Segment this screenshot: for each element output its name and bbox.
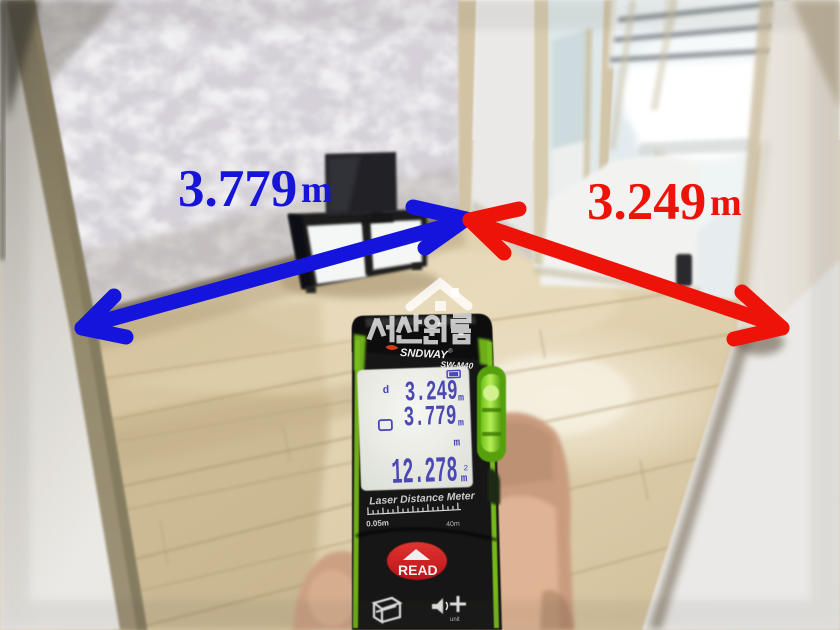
svg-text:m: m — [710, 182, 742, 224]
svg-text:d: d — [382, 385, 389, 397]
svg-text:m: m — [458, 418, 464, 429]
svg-text:40m: 40m — [446, 521, 460, 529]
svg-text:12.278: 12.278 — [391, 451, 458, 494]
svg-text:0.05m: 0.05m — [366, 518, 389, 528]
svg-text:m: m — [461, 473, 468, 485]
svg-text:READ: READ — [398, 562, 438, 578]
svg-text:3.779: 3.779 — [178, 160, 297, 218]
svg-text:m: m — [458, 393, 464, 404]
svg-text:2: 2 — [463, 464, 468, 473]
svg-text:3.779: 3.779 — [403, 402, 457, 435]
svg-text:m: m — [453, 437, 460, 449]
svg-text:3.249: 3.249 — [587, 173, 706, 231]
svg-text:m: m — [301, 169, 333, 211]
